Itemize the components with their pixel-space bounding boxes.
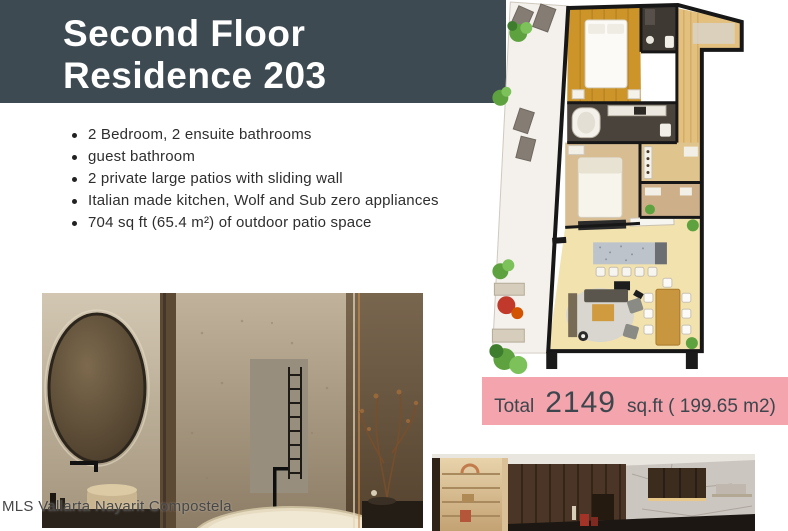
feature-item: 704 sq ft (65.4 m²) of outdoor patio spa… (88, 212, 498, 234)
page-title: Second Floor Residence 203 (0, 0, 506, 97)
watermark-text: MLS Vallarta Nayarit Compostela (2, 498, 232, 515)
feature-item: guest bathroom (88, 146, 498, 168)
total-label: Total (494, 396, 534, 418)
feature-item: 2 Bedroom, 2 ensuite bathrooms (88, 124, 498, 146)
brochure-page: Second Floor Residence 203 2 Bedroom, 2 … (0, 0, 788, 531)
kitchen-photo (432, 454, 755, 531)
total-value: 2149 (545, 386, 616, 420)
floor-plan-image (488, 0, 788, 377)
header-banner: Second Floor Residence 203 (0, 0, 506, 103)
feature-item: Italian made kitchen, Wolf and Sub zero … (88, 190, 498, 212)
page-title-line2: Residence 203 (63, 55, 506, 97)
feature-item: 2 private large patios with sliding wall (88, 168, 498, 190)
total-area-banner: Total 2149 sq.ft ( 199.65 m2) (482, 377, 788, 425)
bathroom-photo (42, 293, 423, 528)
feature-list: 2 Bedroom, 2 ensuite bathrooms guest bat… (88, 124, 498, 234)
page-title-line1: Second Floor (63, 13, 506, 55)
total-unit: sq.ft ( 199.65 m2) (627, 396, 776, 418)
